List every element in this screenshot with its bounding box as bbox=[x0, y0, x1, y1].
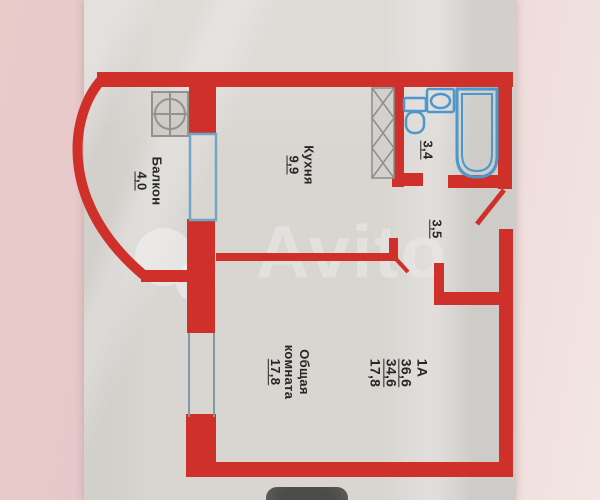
label-living-room: Общая комната 17,8 bbox=[267, 345, 311, 400]
living-room-area: 17,8 bbox=[267, 345, 282, 400]
total-area: 36,6 bbox=[398, 359, 414, 387]
balcony-area: 4,0 bbox=[134, 157, 149, 206]
entrance-door-swing-icon bbox=[477, 190, 504, 224]
bathtub-icon bbox=[457, 89, 497, 177]
kitchen-area: 9,9 bbox=[286, 145, 301, 185]
apartment-type: 1А bbox=[414, 359, 430, 387]
floorplan-photo: Avito bbox=[0, 0, 600, 500]
kitchen-name: Кухня bbox=[301, 145, 316, 185]
balcony-name: Балкон bbox=[149, 157, 164, 206]
window-double-line bbox=[189, 333, 214, 417]
room-area: 17,8 bbox=[367, 359, 383, 387]
label-hallway: 3,5 bbox=[429, 220, 444, 239]
hallway-area: 3,5 bbox=[429, 220, 444, 239]
label-apartment-spec: 1А 36,6 34,6 17,8 bbox=[367, 359, 430, 387]
photo-counter-badge bbox=[266, 487, 348, 500]
sink-icon bbox=[427, 89, 454, 112]
toilet-icon bbox=[404, 98, 426, 133]
label-bathroom: 3,4 bbox=[420, 141, 435, 160]
living-room-name: Общая bbox=[296, 345, 311, 400]
kitchen-door-swing-icon bbox=[396, 259, 408, 272]
living-room-name: комната bbox=[282, 345, 297, 400]
balcony-door-window bbox=[190, 134, 216, 220]
label-kitchen: Кухня 9,9 bbox=[286, 145, 315, 185]
living-area: 34,6 bbox=[382, 359, 398, 387]
bathroom-area: 3,4 bbox=[420, 141, 435, 160]
plan-graphics bbox=[0, 0, 600, 500]
vent-shaft-icon bbox=[372, 88, 394, 178]
label-balcony: Балкон 4,0 bbox=[134, 157, 163, 206]
stove-burner-icon bbox=[152, 92, 188, 136]
